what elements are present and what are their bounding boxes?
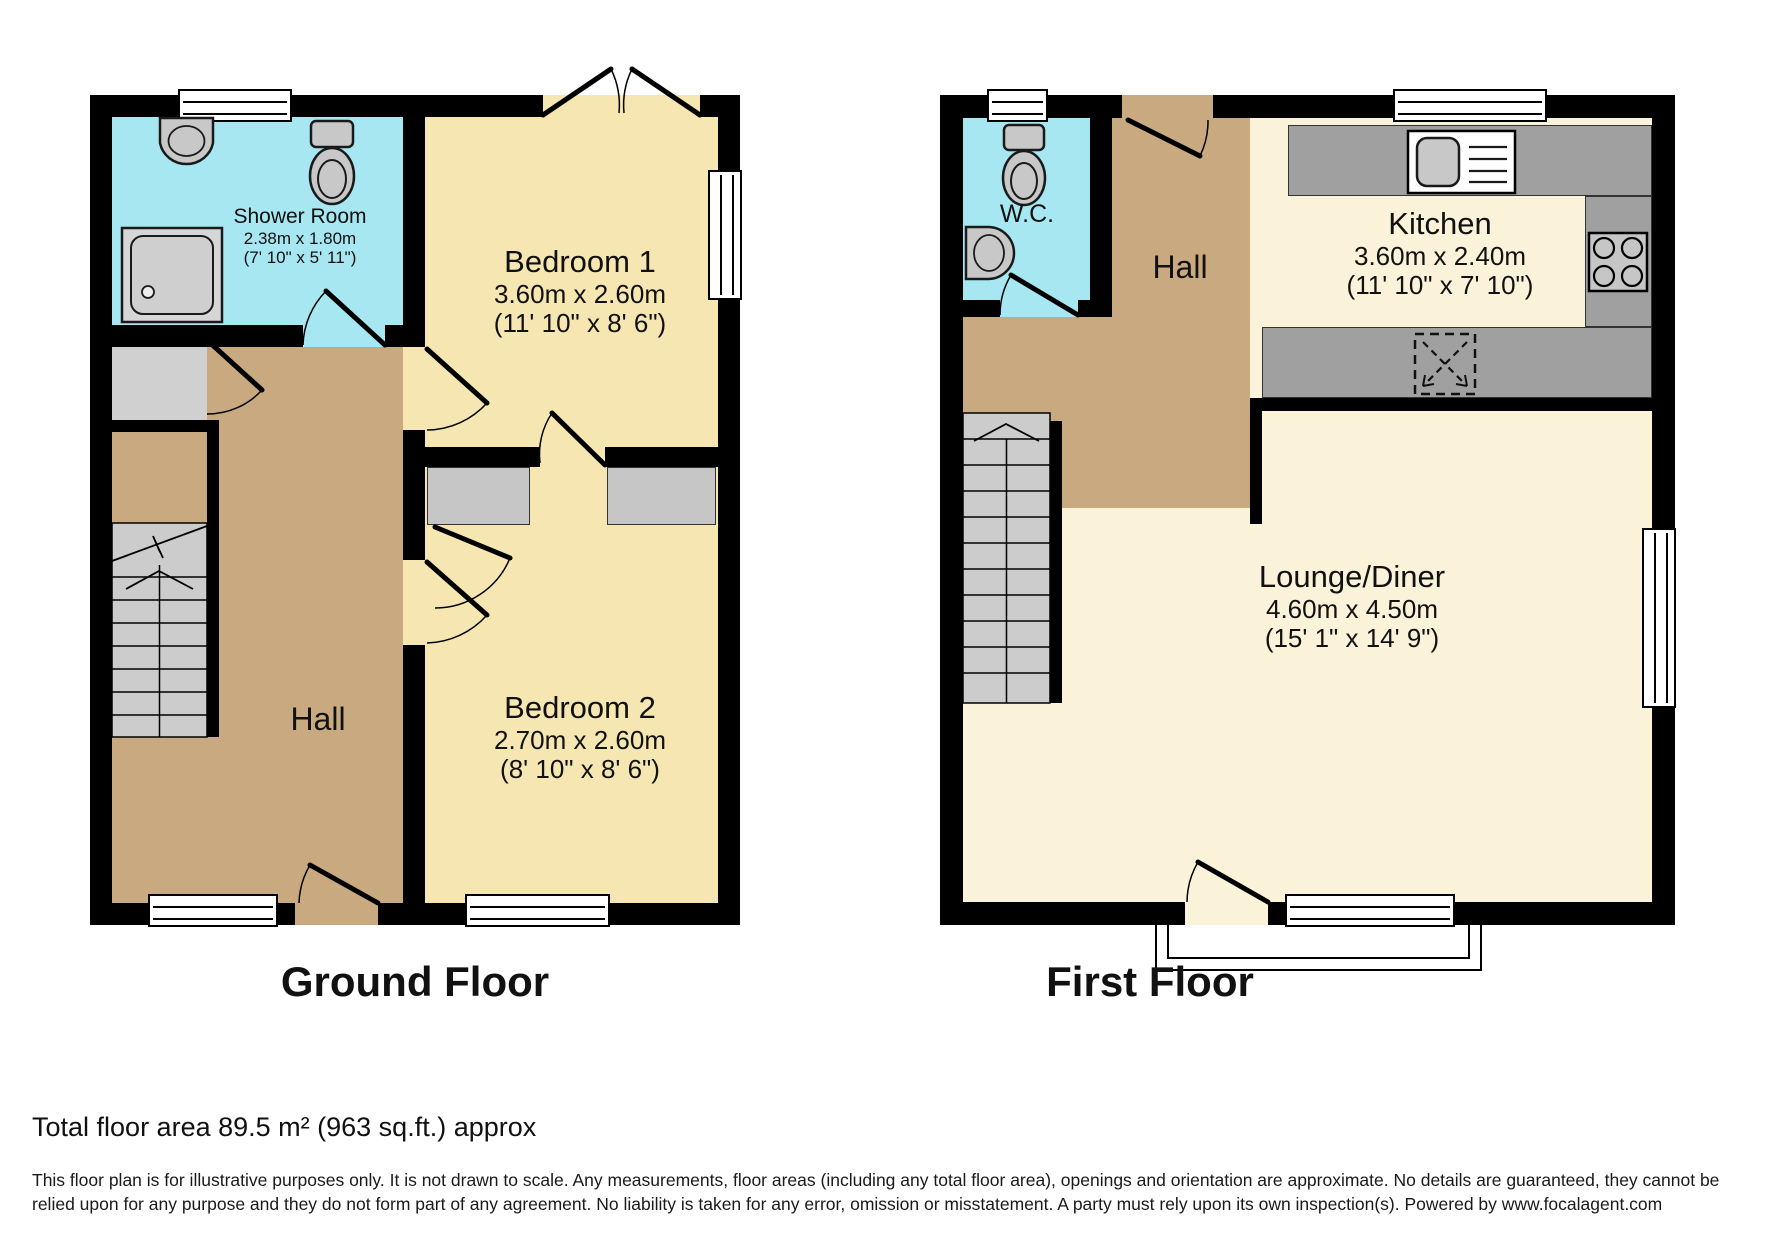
french-door-gap [543, 95, 700, 117]
wall-segment [1652, 95, 1675, 925]
room-dim-metric: 3.60m x 2.60m [430, 280, 730, 309]
bedroom2-label: Bedroom 2 2.70m x 2.60m (8' 10" x 8' 6") [430, 691, 730, 784]
bedroom1-label: Bedroom 1 3.60m x 2.60m (11' 10" x 8' 6"… [430, 245, 730, 338]
room-dim-imperial: (15' 1" x 14' 9") [1182, 624, 1522, 653]
first-floor-plan: W.C. Hall Kitchen 3.60m x 2.40m (11' 10"… [940, 95, 1675, 925]
wall-segment [940, 902, 1185, 925]
wc-window [987, 89, 1048, 122]
first-hall-floor2 [963, 317, 1112, 508]
title-text: First Floor [1046, 958, 1254, 1005]
ground-floor-plan: Shower Room 2.38m x 1.80m (7' 10" x 5' 1… [90, 95, 740, 925]
wall-segment [112, 325, 303, 347]
bedroom2-door-gap [403, 560, 425, 645]
bedroom2-window [465, 894, 610, 927]
wall-segment [90, 95, 112, 925]
room-name: Bedroom 1 [430, 245, 730, 280]
room-dim-metric: 2.70m x 2.60m [430, 726, 730, 755]
bedroom1-door-gap [403, 347, 425, 430]
room-name: Hall [290, 701, 345, 737]
title-text: Ground Floor [281, 958, 549, 1005]
entry-door-gap [1122, 95, 1213, 118]
room-name: Kitchen [1270, 207, 1610, 242]
wardrobe-right [607, 467, 716, 525]
wardrobe-left [427, 467, 530, 525]
porch-inner-outline [1167, 923, 1470, 959]
shower-door-gap [303, 325, 385, 347]
wall-segment [112, 420, 207, 432]
wc-label: W.C. [972, 200, 1082, 228]
lounge-door-gap [1185, 902, 1268, 925]
bedroom2-floor [425, 467, 718, 903]
wall-segment [940, 95, 963, 925]
wall-segment [1262, 398, 1652, 411]
room-dim-metric: 4.60m x 4.50m [1182, 595, 1522, 624]
kitchen-window [1393, 89, 1547, 122]
room-name: W.C. [1000, 200, 1054, 228]
first-hall-floor [1112, 118, 1250, 508]
front-door-gap [295, 903, 378, 925]
room-name: Shower Room [190, 205, 410, 229]
lounge-side-window [1642, 528, 1676, 708]
wc-door-gap [1000, 300, 1078, 317]
room-name: Hall [1152, 249, 1207, 285]
room-dim-metric: 2.38m x 1.80m [190, 229, 410, 248]
ground-hall-label: Hall [223, 702, 413, 738]
wall-segment [1090, 118, 1112, 317]
kitchen-label: Kitchen 3.60m x 2.40m (11' 10" x 7' 10") [1270, 207, 1610, 300]
room-dim-imperial: (11' 10" x 8' 6") [430, 309, 730, 338]
wall-segment [963, 300, 1000, 317]
total-floor-area: Total floor area 89.5 m² (963 sq.ft.) ap… [32, 1112, 536, 1143]
lounge-bottom-window [1285, 894, 1455, 927]
wall-segment [425, 447, 540, 467]
lounge-label: Lounge/Diner 4.60m x 4.50m (15' 1" x 14'… [1182, 560, 1522, 653]
wall-segment [1078, 300, 1112, 317]
wall-segment [1050, 421, 1062, 703]
wall-segment [403, 645, 425, 903]
room-dim-metric: 3.60m x 2.40m [1270, 242, 1610, 271]
shower-room-label: Shower Room 2.38m x 1.80m (7' 10" x 5' 1… [190, 205, 410, 267]
wall-segment [90, 95, 543, 117]
disclaimer-text: This floor plan is for illustrative purp… [32, 1168, 1762, 1216]
floorplan-canvas: Shower Room 2.38m x 1.80m (7' 10" x 5' 1… [0, 0, 1771, 1239]
room-name: Bedroom 2 [430, 691, 730, 726]
kitchen-counter-bottom [1262, 327, 1652, 398]
wall-segment [1250, 398, 1262, 524]
divider-door-gap [540, 447, 605, 467]
first-floor-title: First Floor [900, 958, 1400, 1006]
hall-cupboard [112, 337, 207, 420]
kitchen-counter-top [1288, 125, 1652, 196]
room-dim-imperial: (8' 10" x 8' 6") [430, 755, 730, 784]
shower-window [178, 89, 292, 122]
hall-window [148, 894, 278, 927]
wall-segment [207, 420, 219, 737]
wall-segment [605, 447, 718, 467]
first-hall-label: Hall [1105, 250, 1255, 286]
ground-floor-title: Ground Floor [165, 958, 665, 1006]
room-dim-imperial: (11' 10" x 7' 10") [1270, 271, 1610, 300]
room-name: Lounge/Diner [1182, 560, 1522, 595]
wall-segment [403, 430, 425, 560]
room-dim-imperial: (7' 10" x 5' 11") [190, 248, 410, 267]
